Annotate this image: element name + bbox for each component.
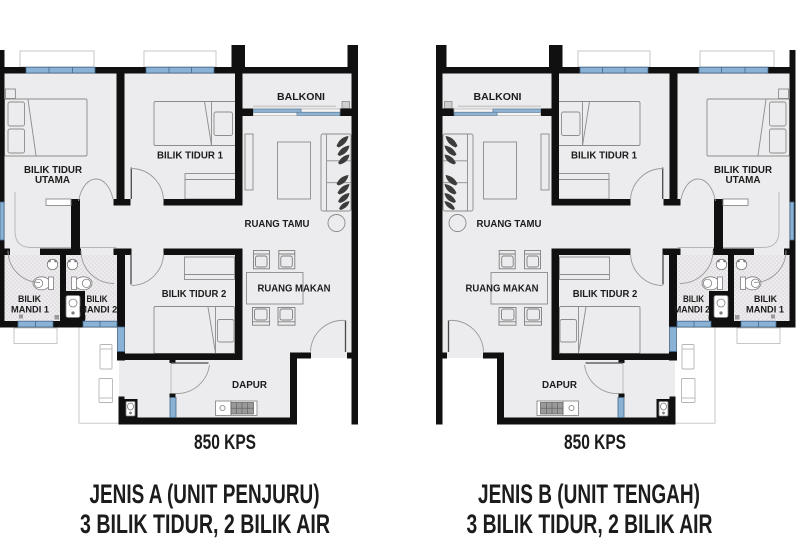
svg-text:JENIS B (UNIT TENGAH): JENIS B (UNIT TENGAH): [478, 479, 700, 509]
svg-text:BILIK TIDUR 1: BILIK TIDUR 1: [157, 151, 223, 162]
svg-text:UTAMA: UTAMA: [726, 175, 761, 186]
svg-text:DAPUR: DAPUR: [232, 380, 268, 391]
svg-text:RUANG TAMU: RUANG TAMU: [477, 219, 542, 230]
svg-text:850 KPS: 850 KPS: [194, 431, 256, 454]
svg-text:BILIK: BILIK: [87, 294, 108, 304]
svg-text:MANDI 2: MANDI 2: [79, 305, 117, 315]
svg-text:BILIK TIDUR 2: BILIK TIDUR 2: [162, 289, 227, 300]
svg-text:MANDI 2: MANDI 2: [674, 305, 710, 315]
svg-text:850 KPS: 850 KPS: [564, 431, 626, 454]
svg-text:RUANG MAKAN: RUANG MAKAN: [466, 284, 539, 295]
svg-text:RUANG MAKAN: RUANG MAKAN: [258, 284, 331, 295]
svg-text:BILIK: BILIK: [754, 294, 777, 304]
svg-text:BALKONI: BALKONI: [474, 92, 522, 103]
svg-text:DAPUR: DAPUR: [542, 380, 578, 391]
svg-text:UTAMA: UTAMA: [35, 175, 70, 186]
svg-text:3 BILIK TIDUR, 2 BILIK AIR: 3 BILIK TIDUR, 2 BILIK AIR: [467, 509, 713, 539]
svg-text:BILIK TIDUR 1: BILIK TIDUR 1: [571, 151, 637, 162]
svg-text:RUANG TAMU: RUANG TAMU: [245, 219, 310, 230]
svg-text:BALKONI: BALKONI: [277, 92, 325, 103]
svg-text:MANDI 1: MANDI 1: [11, 305, 49, 315]
svg-text:BILIK: BILIK: [18, 294, 41, 304]
svg-text:JENIS A (UNIT PENJURU): JENIS A (UNIT PENJURU): [90, 479, 320, 509]
svg-text:BILIK TIDUR 2: BILIK TIDUR 2: [573, 289, 638, 300]
svg-text:3 BILIK TIDUR, 2 BILIK AIR: 3 BILIK TIDUR, 2 BILIK AIR: [80, 509, 330, 539]
svg-text:MANDI 1: MANDI 1: [746, 305, 784, 315]
svg-text:BILIK: BILIK: [683, 294, 704, 304]
